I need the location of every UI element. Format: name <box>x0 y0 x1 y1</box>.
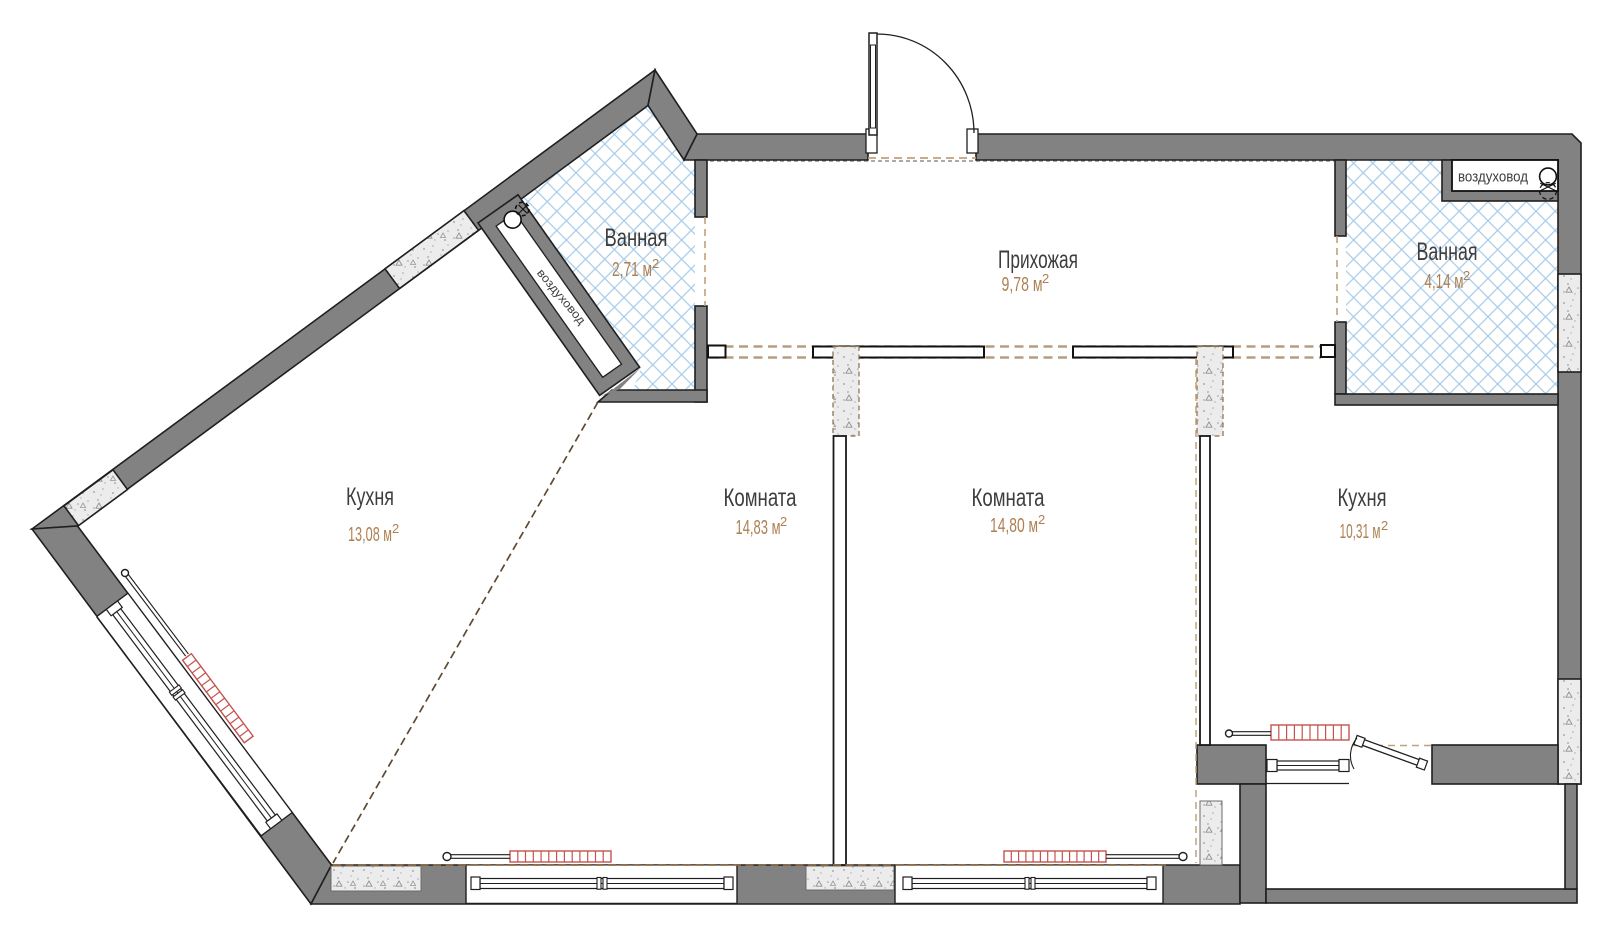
svg-text:2: 2 <box>1038 512 1045 527</box>
svg-text:2: 2 <box>1463 268 1470 283</box>
svg-text:Кухня: Кухня <box>346 483 394 511</box>
svg-text:воздуховод: воздуховод <box>1458 169 1528 186</box>
svg-text:2: 2 <box>1381 518 1388 533</box>
svg-text:13,08 м: 13,08 м <box>348 524 392 546</box>
svg-text:Комната: Комната <box>972 484 1045 512</box>
svg-text:Комната: Комната <box>724 484 797 512</box>
svg-text:2: 2 <box>652 256 659 271</box>
svg-text:Ванная: Ванная <box>1417 238 1478 266</box>
svg-text:14,83 м: 14,83 м <box>736 517 781 539</box>
svg-text:10,31 м: 10,31 м <box>1340 521 1381 543</box>
svg-text:2: 2 <box>780 514 787 529</box>
svg-text:4,14 м: 4,14 м <box>1425 271 1464 293</box>
svg-text:Прихожая: Прихожая <box>998 246 1078 274</box>
svg-text:9,78 м: 9,78 м <box>1002 274 1043 296</box>
svg-text:2: 2 <box>392 521 399 536</box>
svg-text:Ванная: Ванная <box>605 224 668 252</box>
svg-text:Кухня: Кухня <box>1338 484 1387 512</box>
svg-text:2,71 м: 2,71 м <box>612 259 652 281</box>
svg-text:14,80 м: 14,80 м <box>990 515 1038 537</box>
svg-text:2: 2 <box>1042 271 1049 286</box>
